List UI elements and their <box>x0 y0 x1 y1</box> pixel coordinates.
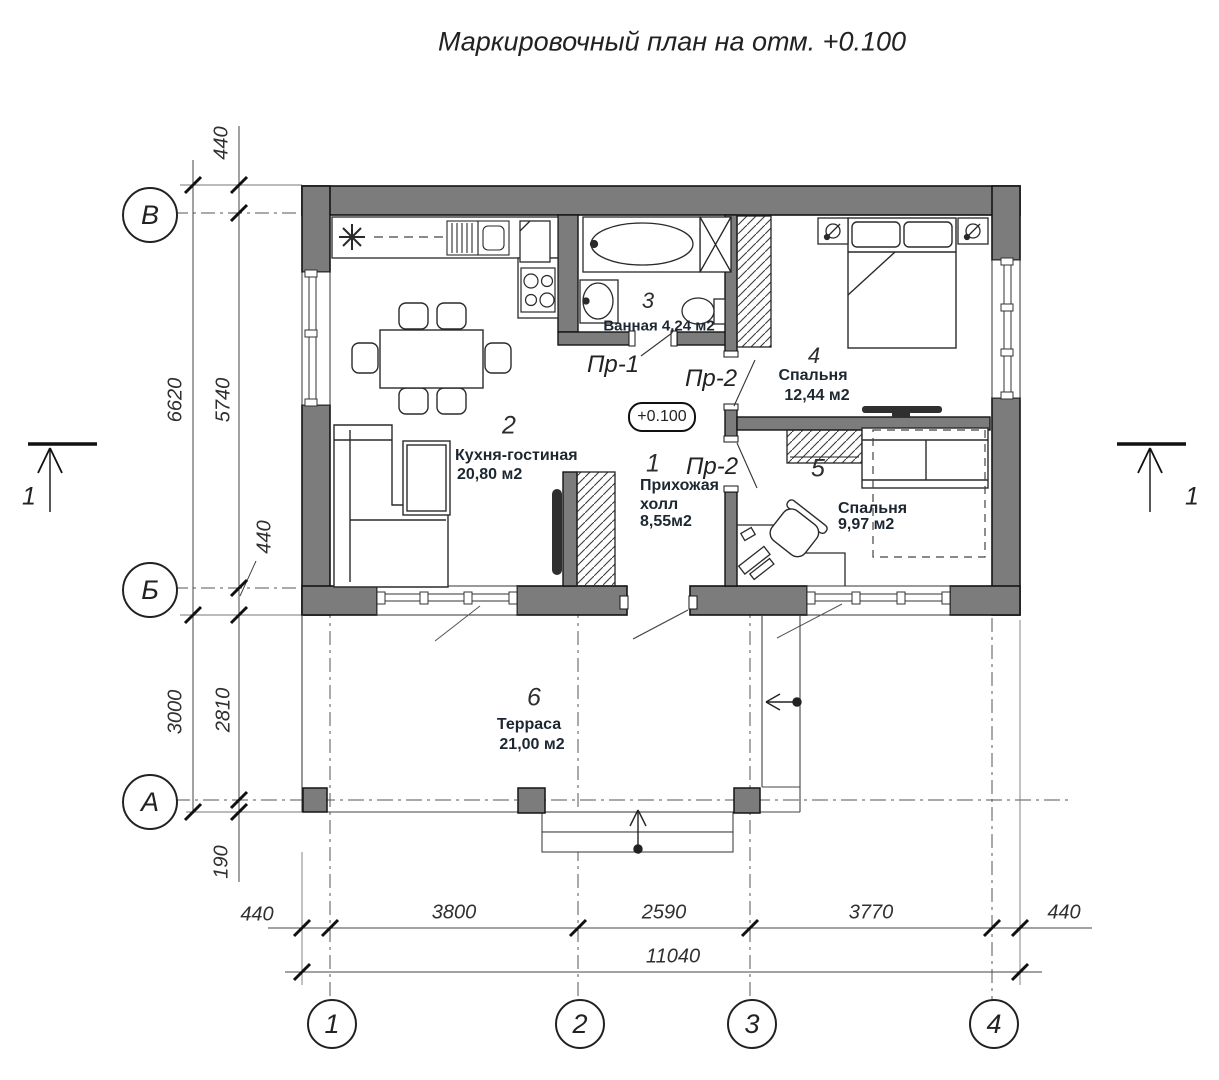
axis-circle-3: 3 <box>727 999 777 1049</box>
floor-plan-sheet: Маркировочный план на отм. +0.100 В Б А … <box>0 0 1219 1080</box>
dim-3770: 3770 <box>849 902 894 925</box>
nightstand-left <box>818 218 848 244</box>
axis-label-1: 1 <box>324 1009 339 1040</box>
room4-area: 12,44 м2 <box>784 387 849 405</box>
section-mark-right <box>1117 444 1186 512</box>
section-label-left: 1 <box>22 483 36 512</box>
elevation-mark: +0.100 <box>628 402 696 432</box>
room1-area: 8,55м2 <box>640 513 692 531</box>
room2-number: 2 <box>502 412 516 441</box>
room1-number: 1 <box>646 450 660 479</box>
room1-name-line2: холл <box>640 496 678 514</box>
dim-440-left: 440 <box>240 904 273 927</box>
room6-area: 21,00 м2 <box>499 736 564 754</box>
dim-11040-total: 11040 <box>646 946 700 969</box>
fridge <box>520 221 550 262</box>
dim-440-right: 440 <box>1047 902 1080 925</box>
axis-circle-2: 2 <box>555 999 605 1049</box>
dim-190: 190 <box>211 845 234 878</box>
axis-label-a: А <box>141 787 159 818</box>
axis-circle-b: Б <box>122 562 178 618</box>
dining-table <box>352 303 511 414</box>
dim-2590: 2590 <box>642 902 687 925</box>
window-left <box>302 270 330 406</box>
room3-number: 3 <box>642 288 654 314</box>
nightstand-right <box>958 218 988 244</box>
plan-drawing <box>0 0 1219 1080</box>
sheet-title: Маркировочный план на отм. +0.100 <box>438 27 906 58</box>
window-right <box>992 258 1020 399</box>
opening-label-pr1: Пр-1 <box>587 351 639 379</box>
dim-2810: 2810 <box>213 688 236 733</box>
sofa-bedroom5 <box>862 428 988 488</box>
side-ramp-arrow <box>766 694 801 710</box>
dim-6620: 6620 <box>165 378 188 423</box>
room4-number: 4 <box>808 343 820 369</box>
room6-name: Терраса <box>497 716 561 734</box>
room2-area: 20,80 м2 <box>457 466 522 484</box>
room5-area: 9,97 м2 <box>838 516 894 534</box>
elevation-value: +0.100 <box>637 408 686 426</box>
wardrobe-hatched-hall <box>577 472 615 586</box>
entrance-door-leaf <box>633 610 688 639</box>
axis-label-3: 3 <box>744 1009 759 1040</box>
axis-circle-4: 4 <box>969 999 1019 1049</box>
axis-label-2: 2 <box>572 1009 587 1040</box>
window-living <box>377 586 517 641</box>
dim-3000: 3000 <box>165 690 188 735</box>
section-label-right: 1 <box>1185 483 1199 512</box>
room2-name: Кухня-гостиная <box>455 447 578 465</box>
axis-circle-1: 1 <box>307 999 357 1049</box>
dim-5740: 5740 <box>213 378 236 423</box>
vent-duct-box <box>700 217 731 272</box>
tv-living <box>552 489 562 575</box>
opening-label-pr2b: Пр-2 <box>686 453 738 481</box>
opening-label-pr2a: Пр-2 <box>685 365 737 393</box>
room3-label: Ванная 4,24 м2 <box>603 318 714 335</box>
dim-3800: 3800 <box>432 902 477 925</box>
terrace-outline <box>302 615 800 812</box>
dim-440-inner: 440 <box>254 520 277 553</box>
tv-bedroom4 <box>862 406 942 417</box>
section-mark-left <box>28 444 97 512</box>
bed-double <box>848 218 956 348</box>
coffee-table <box>403 441 450 515</box>
room5-number: 5 <box>811 455 825 484</box>
axis-circle-a: А <box>122 774 178 830</box>
room6-number: 6 <box>527 684 541 713</box>
bathtub <box>583 217 700 272</box>
room4-name: Спальня <box>778 367 847 385</box>
axis-circle-v: В <box>122 187 178 243</box>
wardrobe-hatched-bedroom4 <box>737 216 771 347</box>
axis-label-v: В <box>141 200 159 231</box>
dim-440-top: 440 <box>211 126 234 159</box>
axis-label-b: Б <box>141 575 159 606</box>
axis-label-4: 4 <box>986 1009 1001 1040</box>
